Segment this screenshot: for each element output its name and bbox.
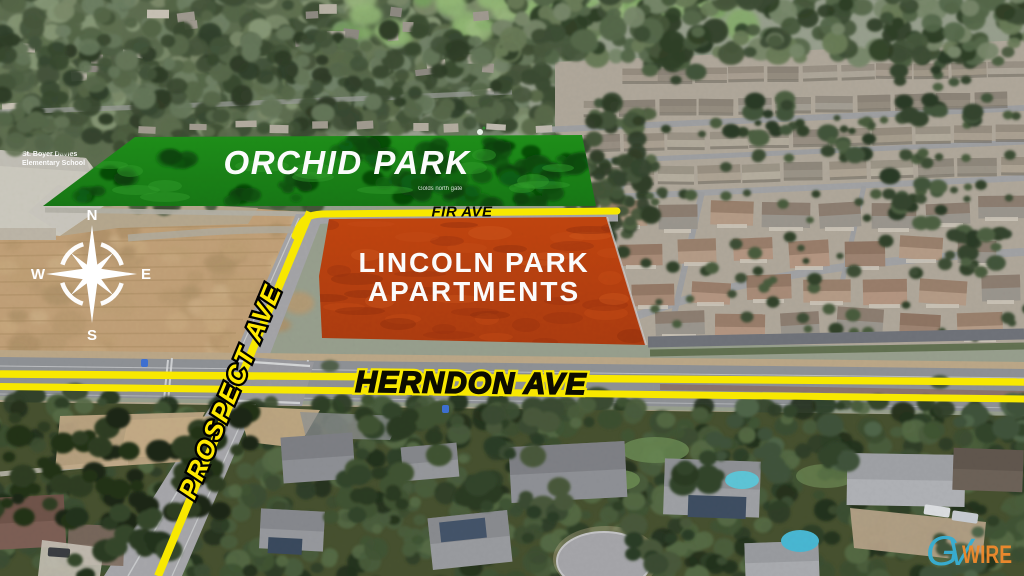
svg-text:HERNDON AVE: HERNDON AVE — [355, 366, 587, 401]
svg-text:N: N — [87, 207, 98, 224]
svg-text:S: S — [87, 327, 97, 344]
svg-text:W: W — [31, 266, 46, 283]
svg-text:E: E — [141, 266, 151, 283]
svg-text:WIRE: WIRE — [962, 541, 1012, 569]
svg-text:FIR AVE: FIR AVE — [431, 204, 492, 221]
